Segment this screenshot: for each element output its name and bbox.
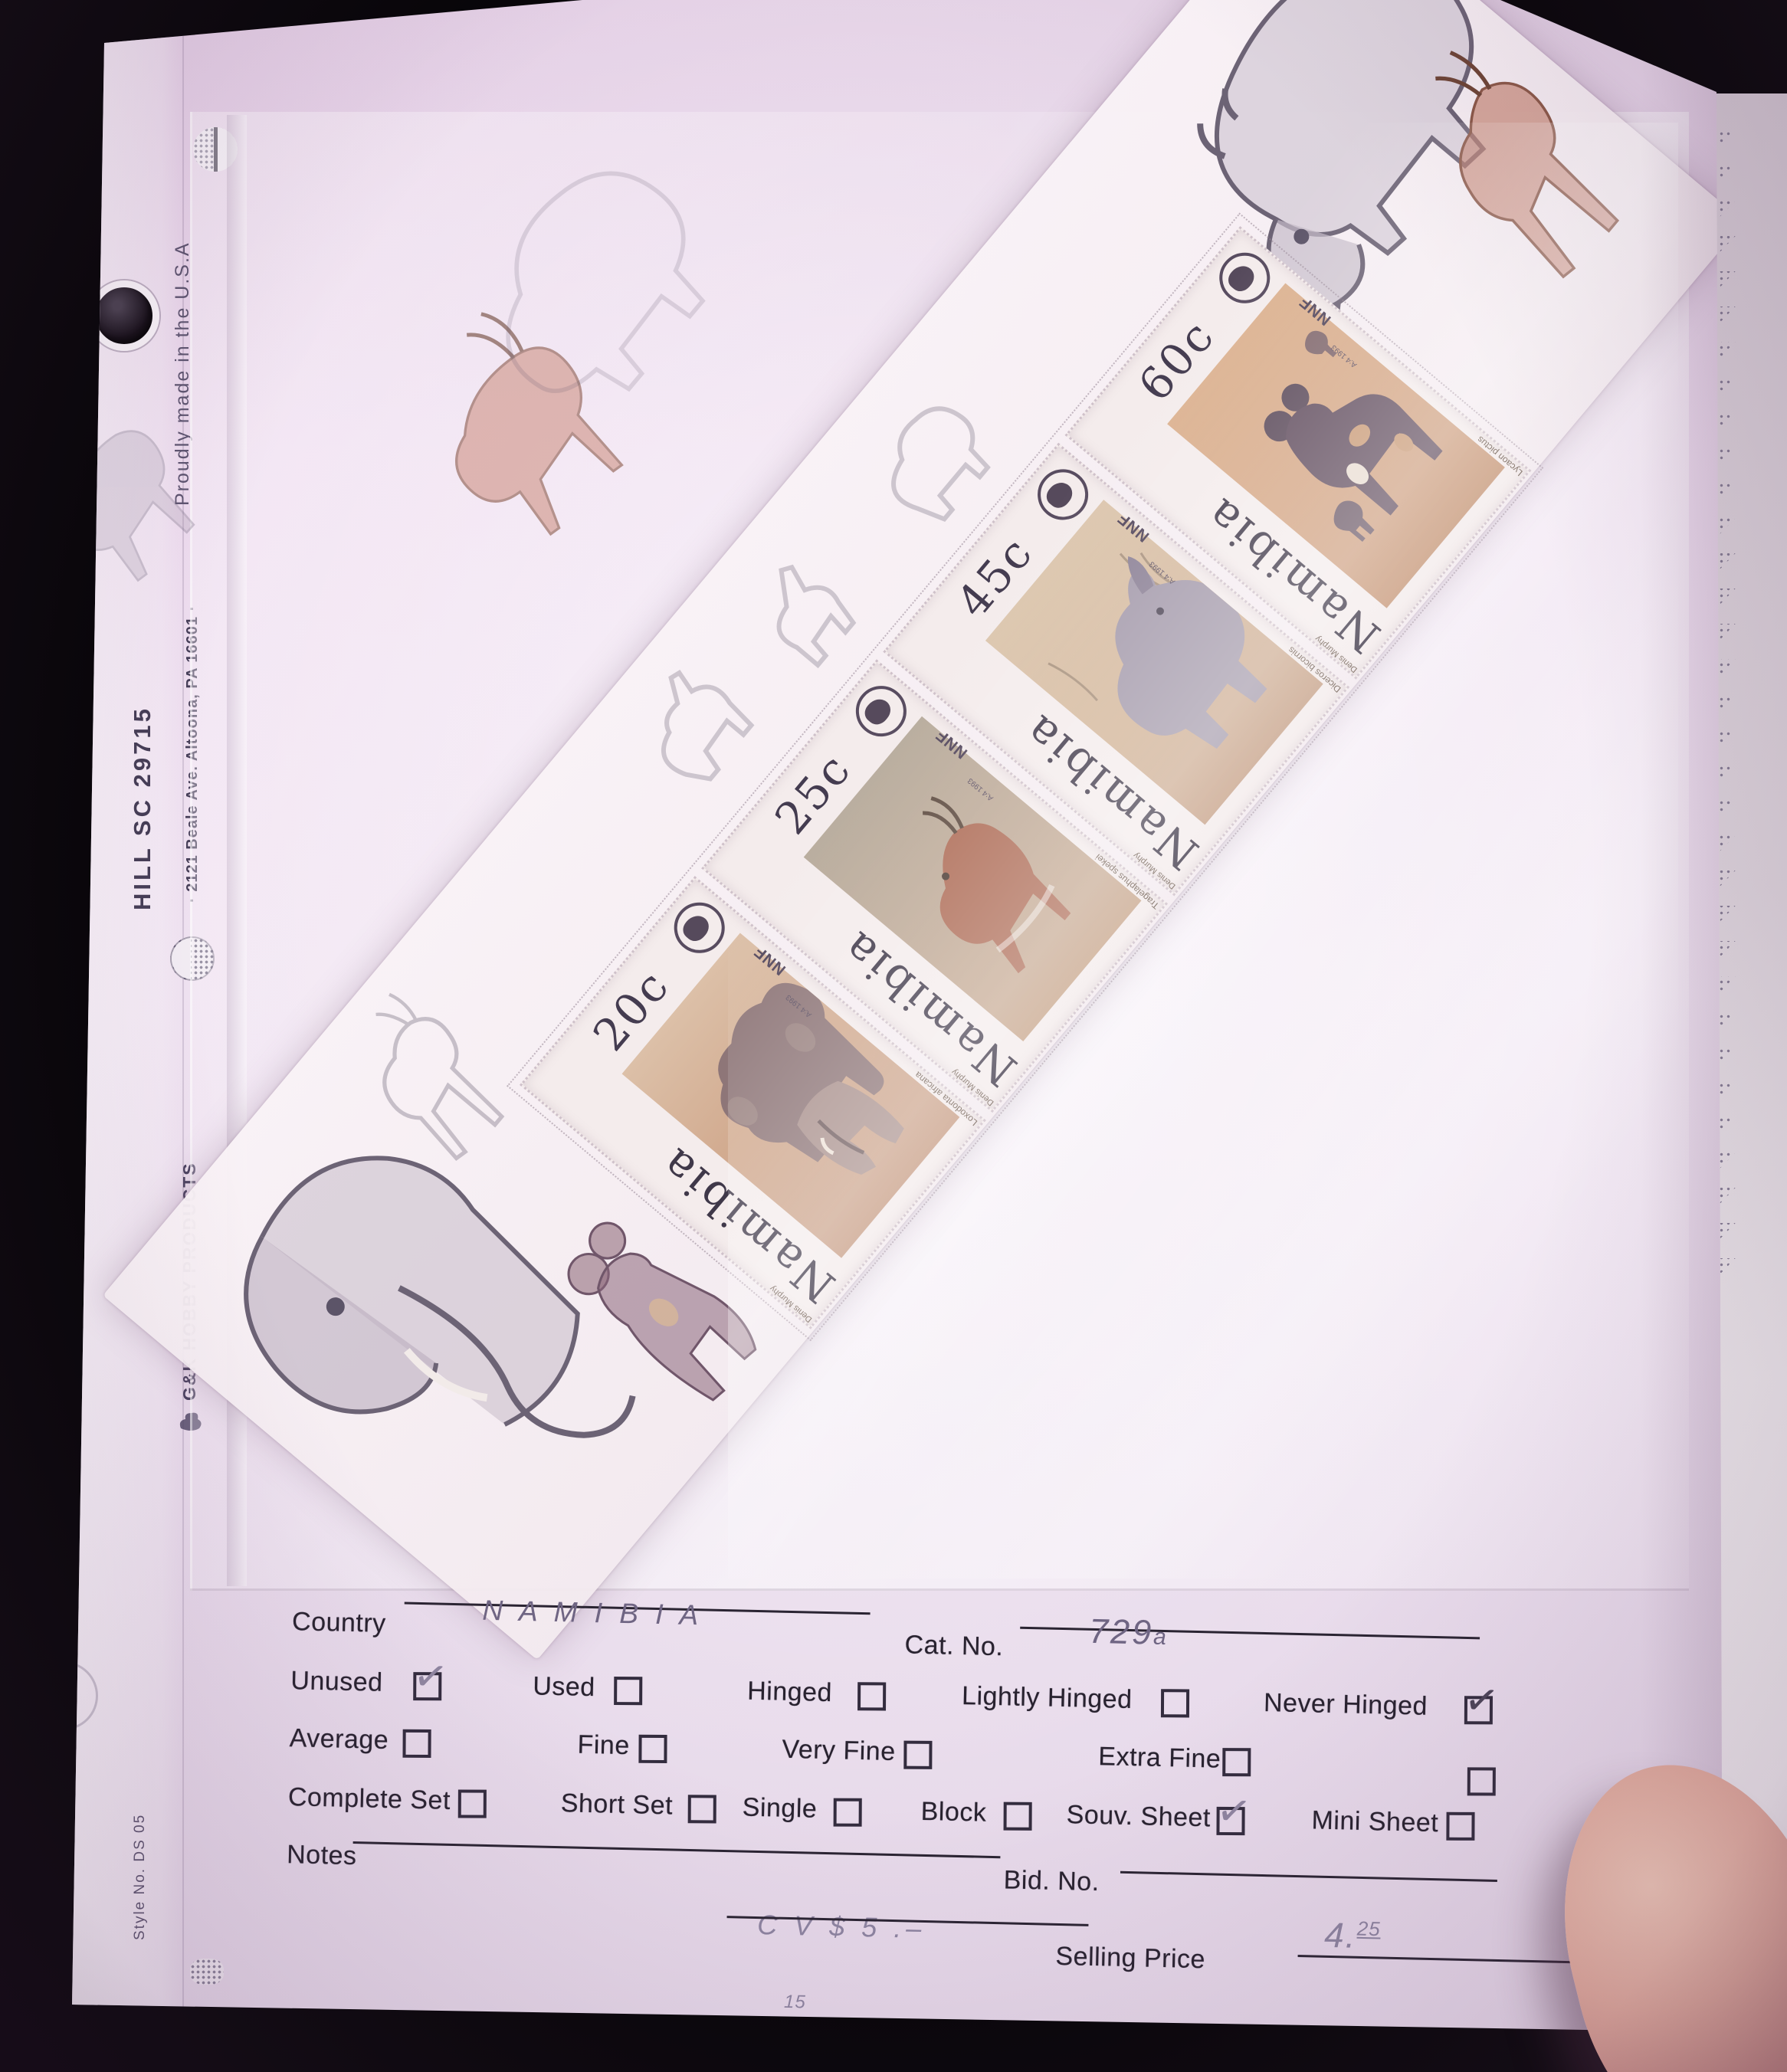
cat-no-label: Cat. No. [904, 1630, 1004, 1662]
label-block: Block [920, 1797, 987, 1828]
dealer-page: Proudly made in the U.S.A · 2121 Beale A… [0, 0, 1787, 2072]
stamp-picture-wild-dogs [1167, 283, 1505, 608]
check-mark-icon [1461, 1674, 1503, 1726]
label-mini-sheet: Mini Sheet [1311, 1805, 1438, 1838]
notes-line[interactable] [353, 1841, 1001, 1858]
bid-no-label: Bid. No. [1003, 1865, 1100, 1897]
halftone-mark-icon [190, 1959, 224, 1985]
dealer-form: Country N A M I B I A Cat. No. 729a Unus… [242, 1592, 1746, 2072]
selling-price-label: Selling Price [1055, 1942, 1205, 1975]
bid-no-line[interactable] [1120, 1871, 1497, 1882]
label-short-set: Short Set [560, 1788, 673, 1821]
corner-pencil-note: 15 [784, 1992, 806, 2014]
page-edge-shadow [1640, 0, 1723, 2072]
country-label: Country [292, 1607, 386, 1639]
label-hinged: Hinged [747, 1677, 833, 1709]
catalog-value-handwritten: C V $ 5 .– [757, 1909, 926, 1945]
style-number-text: Style No. DS 05 [132, 1818, 149, 1940]
label-fine: Fine [577, 1730, 630, 1762]
cat-no-value-handwritten: 729a [1089, 1611, 1169, 1653]
label-average: Average [289, 1723, 389, 1756]
label-unused: Unused [290, 1666, 383, 1698]
check-mark-icon [1213, 1785, 1255, 1838]
label-used: Used [533, 1671, 595, 1703]
checkbox-very-fine[interactable] [903, 1741, 932, 1769]
label-complete-set: Complete Set [287, 1782, 451, 1816]
checkbox-unused[interactable] [413, 1672, 441, 1700]
handwritten-inventory-code: HILL SC 29715 [129, 650, 156, 910]
label-single: Single [742, 1793, 817, 1824]
checkbox-fine[interactable] [638, 1735, 667, 1763]
checkbox-souv-sheet[interactable] [1216, 1807, 1244, 1835]
condition-row-2: Average Fine Very Fine Extra Fine [253, 1592, 1746, 1626]
checkbox-lightly-hinged[interactable] [1161, 1689, 1189, 1717]
checkbox-block[interactable] [1004, 1802, 1032, 1831]
wild-dogs-art [1167, 283, 1505, 608]
condition-row-1: Unused Used Hinged Lightly Hinged Never … [253, 1592, 1746, 1626]
checkbox-mini-sheet[interactable] [1446, 1812, 1474, 1841]
country-value-handwritten: N A M I B I A [482, 1595, 703, 1632]
checkbox-hinged[interactable] [857, 1682, 886, 1710]
photo-of-stamp-dealer-page: Proudly made in the U.S.A · 2121 Beale A… [0, 0, 1787, 2072]
label-lightly-hinged: Lightly Hinged [962, 1681, 1133, 1715]
label-souv-sheet: Souv. Sheet [1066, 1800, 1211, 1833]
checkbox-unlabeled[interactable] [1467, 1767, 1496, 1795]
checkbox-used[interactable] [614, 1677, 642, 1705]
format-row: Complete Set Short Set Single Block Souv… [253, 1592, 1746, 1626]
notes-label: Notes [287, 1840, 357, 1871]
label-extra-fine: Extra Fine [1098, 1742, 1221, 1775]
check-mark-icon [410, 1650, 452, 1703]
checkbox-short-set[interactable] [688, 1795, 716, 1823]
serrated-page-edge-pattern [1718, 130, 1747, 1280]
checkbox-complete-set[interactable] [458, 1789, 487, 1818]
punch-hole-bottom-icon [29, 1661, 98, 1730]
label-very-fine: Very Fine [782, 1735, 896, 1767]
selling-price-handwritten: 4.25 [1324, 1914, 1382, 1957]
label-never-hinged: Never Hinged [1264, 1688, 1428, 1722]
checkbox-never-hinged[interactable] [1464, 1696, 1493, 1724]
checkbox-average[interactable] [402, 1729, 431, 1758]
checkbox-extra-fine[interactable] [1222, 1748, 1251, 1776]
checkbox-single[interactable] [834, 1798, 862, 1827]
